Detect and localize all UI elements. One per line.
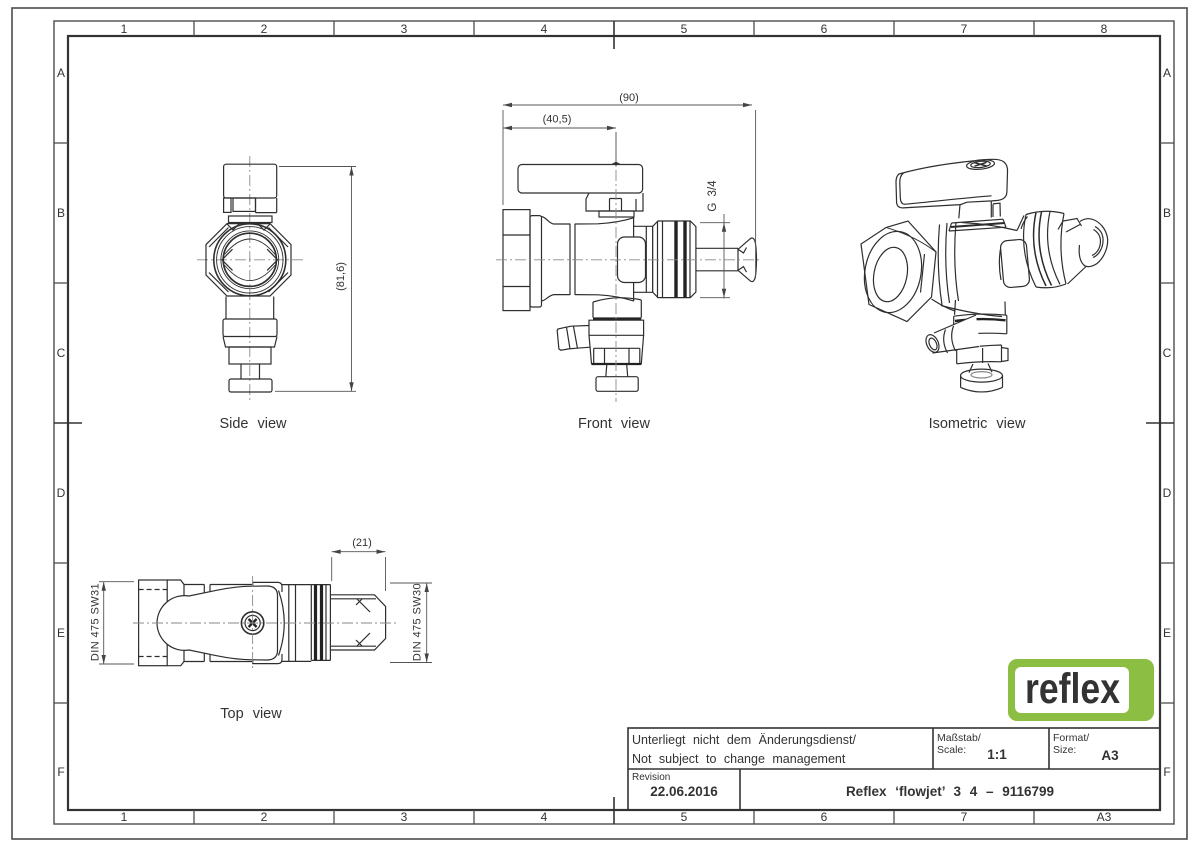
svg-text:7: 7: [961, 22, 968, 36]
svg-text:DIN 475 SW31: DIN 475 SW31: [90, 583, 102, 661]
svg-text:C: C: [1163, 346, 1172, 360]
svg-text:A3: A3: [1097, 810, 1112, 824]
svg-text:A: A: [1163, 66, 1171, 80]
svg-text:7: 7: [961, 810, 968, 824]
svg-text:F: F: [57, 765, 64, 779]
svg-text:Revision: Revision: [632, 772, 670, 783]
svg-text:2: 2: [261, 810, 268, 824]
svg-text:F: F: [1163, 765, 1170, 779]
svg-text:4: 4: [541, 810, 548, 824]
svg-text:(81,6): (81,6): [335, 262, 347, 291]
svg-text:5: 5: [681, 22, 688, 36]
svg-text:Isometric view: Isometric view: [929, 416, 1026, 432]
svg-text:8: 8: [1101, 22, 1108, 36]
svg-text:A3: A3: [1101, 748, 1119, 763]
svg-text:Scale:: Scale:: [937, 744, 966, 756]
svg-text:Reflex ‘flowjet’ 3 4 – 9116799: Reflex ‘flowjet’ 3 4 – 9116799: [846, 784, 1054, 799]
svg-text:3: 3: [401, 810, 408, 824]
svg-text:1:1: 1:1: [987, 747, 1007, 762]
svg-text:6: 6: [821, 810, 828, 824]
svg-text:22.06.2016: 22.06.2016: [650, 784, 718, 799]
svg-text:E: E: [57, 626, 65, 640]
svg-text:Top view: Top view: [220, 706, 282, 722]
svg-text:(90): (90): [619, 92, 639, 104]
svg-text:Maßstab/: Maßstab/: [937, 732, 981, 744]
svg-text:Format/: Format/: [1053, 732, 1089, 744]
svg-text:4: 4: [541, 22, 548, 36]
svg-text:G 3/4: G 3/4: [707, 180, 719, 212]
svg-text:(21): (21): [352, 537, 372, 549]
svg-text:B: B: [1163, 206, 1171, 220]
svg-text:Side view: Side view: [219, 416, 287, 432]
svg-text:reflex: reflex: [1025, 665, 1120, 713]
svg-text:5: 5: [681, 810, 688, 824]
svg-text:3: 3: [401, 22, 408, 36]
svg-text:6: 6: [821, 22, 828, 36]
svg-text:C: C: [57, 346, 66, 360]
svg-text:Size:: Size:: [1053, 744, 1076, 756]
svg-text:(40,5): (40,5): [543, 114, 572, 126]
svg-text:Unterliegt nicht dem Änderungs: Unterliegt nicht dem Änderungsdienst/: [632, 733, 856, 747]
svg-text:Not subject to change manageme: Not subject to change management: [632, 752, 846, 766]
svg-text:D: D: [1163, 486, 1172, 500]
svg-text:1: 1: [121, 810, 128, 824]
svg-text:A: A: [57, 66, 65, 80]
svg-text:DIN 475 SW30: DIN 475 SW30: [412, 583, 424, 661]
svg-text:D: D: [57, 486, 66, 500]
svg-text:Front view: Front view: [578, 416, 650, 432]
svg-text:E: E: [1163, 626, 1171, 640]
svg-text:B: B: [57, 206, 65, 220]
svg-text:1: 1: [121, 22, 128, 36]
svg-text:2: 2: [261, 22, 268, 36]
